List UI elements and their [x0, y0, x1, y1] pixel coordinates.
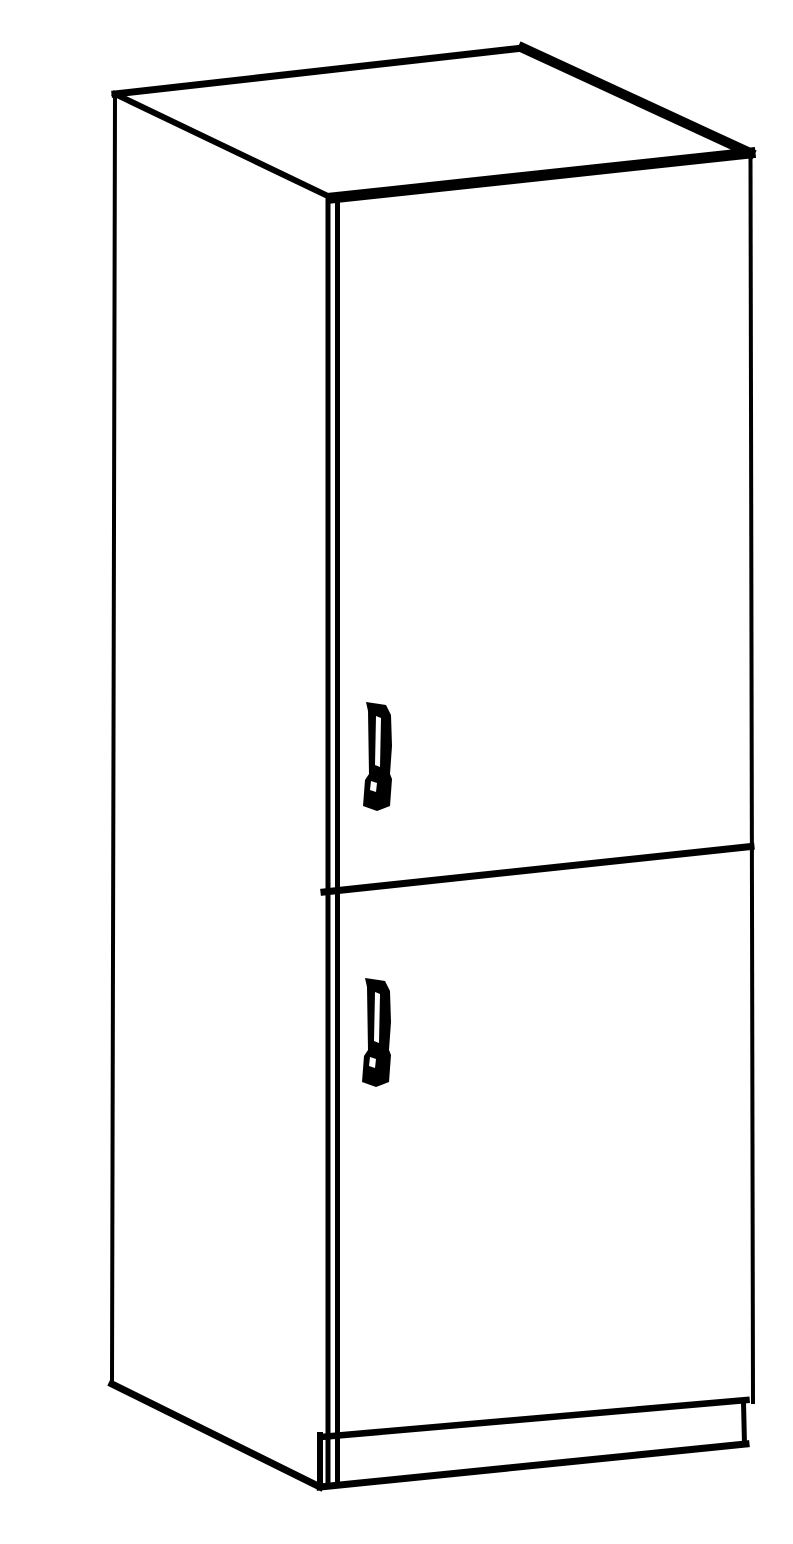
cabinet-illustration: [40, 16, 793, 1528]
front-right-edge: [751, 154, 754, 1402]
upper-door-face: [337, 155, 751, 893]
side-panel-face: [112, 94, 332, 1487]
lower-door-face: [337, 848, 752, 1439]
cabinet-faces: [112, 48, 752, 1487]
plinth-right-edge: [744, 1402, 745, 1444]
